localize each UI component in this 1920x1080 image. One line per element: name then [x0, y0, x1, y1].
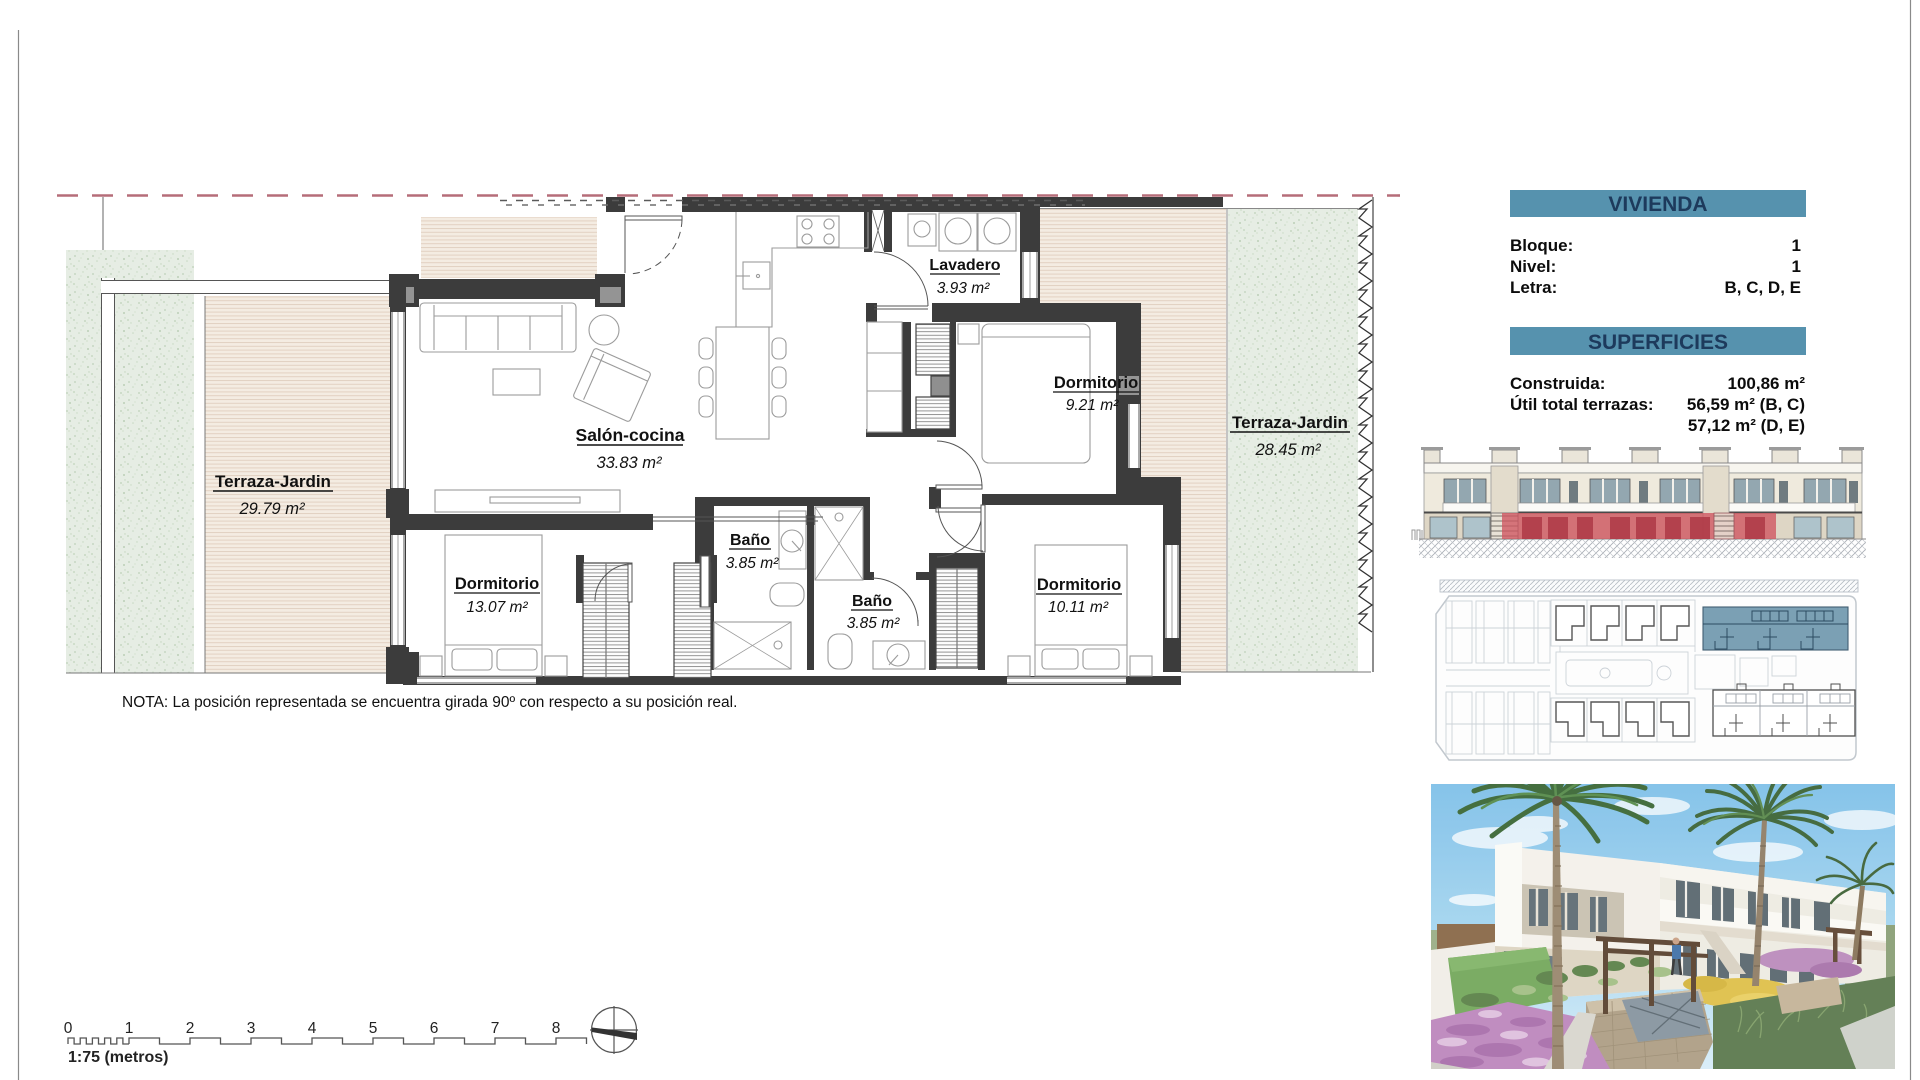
svg-text:1: 1: [1792, 257, 1801, 276]
svg-text:6: 6: [430, 1020, 439, 1037]
svg-text:28.45 m²: 28.45 m²: [1254, 441, 1321, 459]
svg-text:3.85 m²: 3.85 m²: [847, 615, 900, 632]
svg-text:Útil total terrazas:: Útil total terrazas:: [1510, 395, 1654, 414]
svg-text:Dormitorio: Dormitorio: [1037, 576, 1121, 594]
svg-text:13.07 m²: 13.07 m²: [466, 599, 528, 616]
svg-text:1: 1: [1792, 236, 1801, 255]
svg-text:1:75 (metros): 1:75 (metros): [68, 1049, 168, 1066]
svg-text:56,59 m² (B, C): 56,59 m² (B, C): [1687, 395, 1805, 414]
svg-text:Construida:: Construida:: [1510, 374, 1605, 393]
svg-text:Bloque:: Bloque:: [1510, 236, 1573, 255]
svg-text:Dormitorio: Dormitorio: [455, 575, 539, 593]
svg-text:100,86 m²: 100,86 m²: [1728, 374, 1806, 393]
svg-text:1: 1: [125, 1020, 134, 1037]
svg-text:Baño: Baño: [730, 532, 770, 549]
svg-text:7: 7: [491, 1020, 500, 1037]
svg-text:3.93 m²: 3.93 m²: [937, 280, 990, 297]
svg-text:VIVIENDA: VIVIENDA: [1608, 193, 1707, 216]
svg-text:NOTA: La posición representada: NOTA: La posición representada se encuen…: [122, 694, 737, 711]
svg-text:10.11 m²: 10.11 m²: [1048, 599, 1109, 616]
svg-text:SUPERFICIES: SUPERFICIES: [1588, 331, 1728, 354]
svg-text:B, C, D, E: B, C, D, E: [1724, 278, 1801, 297]
svg-text:9.21 m²: 9.21 m²: [1066, 397, 1119, 414]
svg-text:5: 5: [369, 1020, 378, 1037]
svg-text:8: 8: [552, 1020, 561, 1037]
svg-text:Nivel:: Nivel:: [1510, 257, 1556, 276]
svg-text:Dormitorio: Dormitorio: [1054, 374, 1138, 392]
svg-text:Lavadero: Lavadero: [929, 257, 1000, 274]
svg-text:Salón-cocina: Salón-cocina: [576, 425, 685, 445]
svg-text:29.79 m²: 29.79 m²: [238, 500, 305, 518]
svg-text:4: 4: [308, 1020, 317, 1037]
svg-text:2: 2: [186, 1020, 195, 1037]
svg-text:Baño: Baño: [852, 593, 892, 610]
svg-text:57,12 m² (D, E): 57,12 m² (D, E): [1688, 416, 1805, 435]
svg-text:Terraza-Jardin: Terraza-Jardin: [1232, 413, 1348, 432]
svg-text:33.83 m²: 33.83 m²: [596, 454, 662, 472]
svg-text:0: 0: [64, 1020, 73, 1037]
svg-text:3.85 m²: 3.85 m²: [726, 555, 779, 572]
svg-text:Letra:: Letra:: [1510, 278, 1557, 297]
svg-text:Terraza-Jardin: Terraza-Jardin: [215, 472, 331, 491]
svg-text:3: 3: [247, 1020, 256, 1037]
